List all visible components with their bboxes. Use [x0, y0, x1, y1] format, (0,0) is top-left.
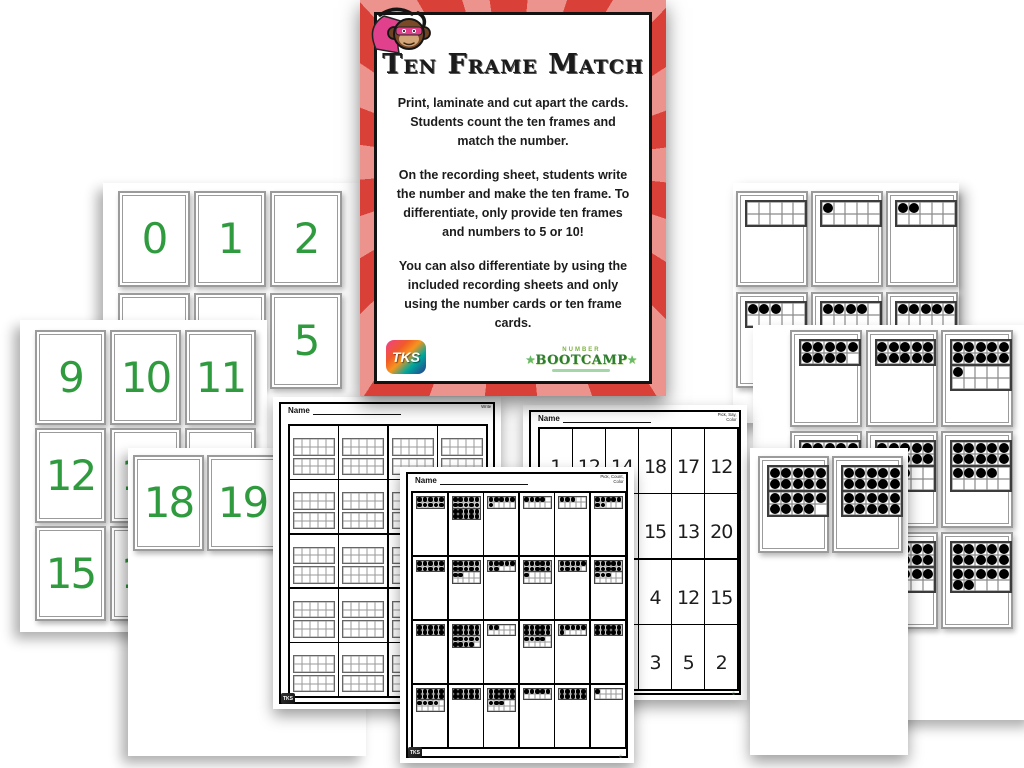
ten-frame-cell — [900, 341, 912, 353]
number-card-value: 10 — [121, 357, 170, 399]
dot — [825, 353, 835, 363]
ten-frame-cell — [326, 629, 334, 637]
mini-ten-frame-group — [487, 624, 516, 637]
ten-frames-grid — [411, 491, 627, 749]
ten-frame — [293, 492, 335, 510]
ten-frame-cell — [302, 439, 310, 447]
ten-frame-cell — [294, 575, 302, 583]
ten-frame-cell — [888, 353, 900, 365]
ten-frame-cell-box — [591, 685, 625, 747]
number-card-inner: 5 — [274, 297, 338, 385]
ten-frame-cell — [318, 684, 326, 692]
dot — [999, 569, 1009, 579]
dot — [987, 544, 997, 554]
dot — [417, 503, 422, 508]
ten-frame-cell — [310, 684, 318, 692]
blank-frame-cell — [339, 589, 387, 642]
ten-frame-group — [745, 200, 807, 227]
ten-frame-cell — [909, 303, 921, 315]
dot — [423, 561, 428, 566]
ten-frame-cell — [964, 442, 976, 454]
dot — [964, 544, 974, 554]
ten-frame-cell — [326, 447, 334, 455]
ten-frame-cell — [824, 353, 836, 365]
ten-frame — [523, 635, 552, 648]
ten-frame — [950, 541, 1012, 568]
dot — [912, 443, 922, 453]
dot — [453, 514, 458, 519]
dot — [417, 701, 422, 706]
dot — [987, 353, 997, 363]
dot — [576, 625, 581, 630]
instruction-paragraph: Print, laminate and cut apart the cards.… — [392, 94, 634, 150]
dot — [759, 304, 769, 314]
ten-frame-cell — [367, 439, 375, 447]
ten-frame-cell — [770, 214, 782, 226]
ten-frame — [523, 624, 552, 637]
ten-frame — [950, 566, 1012, 593]
ten-frame-card — [941, 532, 1013, 629]
ten-frame-cell — [310, 548, 318, 556]
ten-frame-cell — [822, 202, 834, 214]
ten-frame-cell — [318, 548, 326, 556]
dot — [458, 625, 463, 630]
ten-frame-cell — [998, 341, 1010, 353]
ten-frame-cell — [326, 493, 334, 501]
ten-frame-cell — [975, 366, 987, 378]
dot — [565, 497, 570, 502]
ten-frame-cell — [987, 366, 999, 378]
ten-frame-cell — [294, 664, 302, 672]
blank-double-ten-frame — [293, 438, 335, 477]
mini-ten-frame-group — [487, 688, 516, 712]
ten-frame-group — [799, 339, 861, 366]
ten-frame — [452, 496, 481, 509]
dot — [469, 642, 474, 647]
dot — [439, 567, 444, 572]
ten-frame-cell — [920, 214, 932, 226]
ten-frame-cell — [781, 479, 793, 491]
tks-logo: TKS — [408, 747, 422, 758]
ten-frame-cell — [359, 656, 367, 664]
dot — [499, 689, 504, 694]
mini-ten-frame-group — [452, 624, 481, 648]
ten-frame-cell — [847, 341, 859, 353]
ten-frame-cell — [351, 567, 359, 575]
dot — [469, 630, 474, 635]
ten-frame-card — [811, 191, 883, 287]
ten-frame-cell — [302, 684, 310, 692]
ten-frame-cell — [442, 459, 450, 467]
instruction-paragraph: On the recording sheet, students write t… — [392, 166, 634, 241]
dot — [494, 689, 499, 694]
ten-frame-cell — [343, 676, 351, 684]
ten-frame-cell — [769, 479, 781, 491]
dot — [546, 561, 551, 566]
ten-frame-cell — [294, 439, 302, 447]
ten-frame — [293, 655, 335, 673]
ten-frame-cell — [343, 602, 351, 610]
ten-frame-cell — [343, 610, 351, 618]
dot — [606, 567, 611, 572]
ten-frame-cell — [326, 610, 334, 618]
number-card-inner: 1 — [198, 195, 262, 283]
ten-frame-cell — [367, 567, 375, 575]
ten-frame-cell — [343, 664, 351, 672]
ten-frame-group — [841, 465, 903, 517]
dot — [898, 203, 908, 213]
dot — [923, 443, 933, 453]
ten-frame — [594, 624, 623, 637]
ten-frame-cell — [474, 502, 479, 507]
dot — [999, 353, 1009, 363]
dot — [595, 573, 600, 578]
dot — [804, 479, 814, 489]
dot — [428, 689, 433, 694]
dot — [770, 479, 780, 489]
ten-frame-cell — [911, 568, 923, 580]
ten-frame-cell — [294, 493, 302, 501]
mini-ten-frame-group — [416, 496, 445, 509]
ten-frame-group — [767, 465, 829, 517]
dot — [889, 342, 899, 352]
dot — [964, 555, 974, 565]
instruction-paragraph: You can also differentiate by using the … — [392, 257, 634, 332]
ten-frame — [594, 560, 623, 573]
ten-frame-cell — [987, 543, 999, 555]
ten-frame-cell — [897, 303, 909, 315]
ten-frame-cell — [326, 656, 334, 664]
ten-frame-cell-box — [449, 557, 483, 619]
ten-frame-cell — [294, 656, 302, 664]
ten-frame-cell — [367, 656, 375, 664]
name-line — [313, 406, 401, 415]
ten-frame-cell — [987, 568, 999, 580]
dot — [606, 573, 611, 578]
dot — [546, 567, 551, 572]
dot — [964, 569, 974, 579]
number-cell-value: 18 — [644, 456, 666, 478]
ten-frame-cell — [351, 555, 359, 563]
ten-frame-cell — [375, 459, 383, 467]
number-cell-value: 12 — [677, 587, 699, 609]
ten-frame-cell — [367, 513, 375, 521]
dot — [617, 625, 622, 630]
ten-frame — [487, 560, 516, 573]
ten-frame-cell — [302, 610, 310, 618]
dot — [469, 625, 474, 630]
ten-frame-cell — [375, 555, 383, 563]
dot — [987, 342, 997, 352]
dot — [999, 342, 1009, 352]
corner-label: Write — [481, 405, 491, 410]
ten-frame — [342, 601, 384, 619]
dot — [453, 637, 458, 642]
blank-frame-cell — [339, 643, 387, 696]
dot — [453, 497, 458, 502]
ten-frame-cell — [294, 555, 302, 563]
ten-frame-cell — [367, 493, 375, 501]
ten-frame-cell — [318, 575, 326, 583]
dot — [565, 625, 570, 630]
ten-frame-cell — [367, 621, 375, 629]
ten-frame-cell — [439, 502, 444, 507]
ten-frame-cell — [923, 467, 935, 479]
dot — [571, 561, 576, 566]
ten-frame-cell — [326, 555, 334, 563]
ten-frame — [841, 465, 903, 492]
dot — [987, 555, 997, 565]
ten-frame-cell — [975, 467, 987, 479]
ten-frame-cell — [294, 447, 302, 455]
ten-frame-cell — [836, 353, 848, 365]
dot — [469, 497, 474, 502]
dot — [987, 468, 997, 478]
ten-frame-cell — [294, 501, 302, 509]
dot — [524, 625, 529, 630]
ten-frame-cell — [401, 439, 409, 447]
ten-frame-cell — [952, 555, 964, 567]
ten-frame — [950, 364, 1012, 391]
ten-frame-cell — [417, 439, 425, 447]
ten-frame-cell — [318, 459, 326, 467]
ten-frame-cell — [769, 467, 781, 479]
ten-frame — [342, 547, 384, 565]
ten-frame — [416, 624, 445, 637]
dot — [912, 544, 922, 554]
ten-frame-cell-box — [484, 685, 518, 747]
blank-double-ten-frame — [293, 547, 335, 586]
ten-frame-cell — [343, 621, 351, 629]
ten-frame-cell — [474, 514, 479, 519]
number-card-inner: 10 — [114, 334, 177, 421]
dot — [878, 468, 888, 478]
dot — [458, 630, 463, 635]
copyright-fineprint: © — [619, 755, 622, 759]
dot — [606, 630, 611, 635]
ten-frame-group — [895, 301, 957, 328]
ten-frame — [799, 339, 861, 366]
dot — [793, 468, 803, 478]
ten-frame-cell — [866, 492, 878, 504]
dot — [453, 625, 458, 630]
dot — [499, 701, 504, 706]
dot — [611, 567, 616, 572]
ten-frame-cell — [952, 568, 964, 580]
ten-frame-cell — [351, 521, 359, 529]
ten-frame-cell — [822, 303, 834, 315]
mini-ten-frame-group — [594, 560, 623, 584]
dot — [601, 561, 606, 566]
dot — [535, 637, 540, 642]
ten-frame-cell — [367, 664, 375, 672]
ten-frame-cell — [888, 341, 900, 353]
dot — [909, 304, 919, 314]
dot — [825, 342, 835, 352]
number-card: 19 — [207, 455, 278, 551]
ten-frame-card-inner — [945, 536, 1009, 625]
number-card: 12 — [35, 428, 106, 523]
ten-frame-cell — [923, 543, 935, 555]
dot — [565, 694, 570, 699]
ten-frame-cell — [474, 578, 479, 583]
ten-frame-cell — [375, 447, 383, 455]
ten-frame-cell — [302, 447, 310, 455]
dot — [771, 304, 781, 314]
ten-frame-cell — [923, 341, 935, 353]
dot — [601, 503, 606, 508]
dot — [489, 561, 494, 566]
number-cell: 18 — [639, 429, 671, 493]
ten-frame-cell — [302, 521, 310, 529]
ten-frame-cell — [458, 447, 466, 455]
ten-frame-cell — [310, 447, 318, 455]
mini-ten-frame-group — [452, 560, 481, 584]
dot — [453, 509, 458, 514]
dot — [595, 503, 600, 508]
ten-frame-cell — [782, 202, 794, 214]
dot — [434, 567, 439, 572]
dot — [867, 493, 877, 503]
dot — [987, 443, 997, 453]
ten-frame-cell — [294, 459, 302, 467]
name-label: Name — [415, 476, 437, 485]
ten-frame-cell — [375, 664, 383, 672]
dot — [475, 497, 480, 502]
ten-frame — [452, 688, 481, 701]
dot — [458, 642, 463, 647]
ten-frame — [416, 496, 445, 509]
ten-frame-cell — [952, 378, 964, 390]
ten-frame-cell — [343, 548, 351, 556]
ten-frame-cell — [943, 303, 955, 315]
dot — [530, 689, 535, 694]
ten-frame-cell — [343, 555, 351, 563]
ten-frame-cell — [545, 566, 550, 571]
dot — [867, 504, 877, 514]
ten-frame-cell — [359, 501, 367, 509]
ten-frame-cell — [318, 629, 326, 637]
ten-frame-cell — [351, 493, 359, 501]
ten-frame-cell — [964, 467, 976, 479]
dot — [524, 637, 529, 642]
dot — [434, 694, 439, 699]
ten-frame — [820, 301, 882, 328]
dot — [464, 497, 469, 502]
number-cell-value: 15 — [710, 587, 732, 609]
ten-frame-cell — [343, 501, 351, 509]
dot — [770, 468, 780, 478]
ten-frame-cell — [923, 454, 935, 466]
dot — [475, 637, 480, 642]
dot — [423, 689, 428, 694]
dot — [540, 689, 545, 694]
ten-frame-cell — [987, 378, 999, 390]
ten-frame-group — [875, 339, 937, 366]
dot — [877, 342, 887, 352]
dot — [999, 454, 1009, 464]
ten-frame-cell — [923, 479, 935, 491]
dot — [844, 479, 854, 489]
ten-frame-cell — [987, 442, 999, 454]
ten-frame-cell — [474, 694, 479, 699]
ten-frame-cell — [343, 521, 351, 529]
number-bootcamp-logo: NUMBER ★BOOTCAMP★ — [526, 347, 637, 372]
ten-frame-card — [790, 330, 862, 427]
ten-frame-card-inner — [762, 460, 825, 549]
ten-frame — [875, 339, 937, 366]
ten-frame-card — [832, 456, 903, 553]
ten-frame-cell — [294, 548, 302, 556]
ten-frame-group — [820, 301, 882, 328]
dot — [540, 561, 545, 566]
dot — [540, 567, 545, 572]
ten-frame-cell — [359, 602, 367, 610]
ten-frame-cell — [545, 502, 550, 507]
dot — [921, 304, 931, 314]
number-cell: 12 — [672, 560, 704, 624]
number-card-value: 12 — [46, 455, 95, 497]
dot — [953, 367, 963, 377]
dot — [804, 493, 814, 503]
ten-frame-cell — [375, 466, 383, 474]
ten-frame — [293, 458, 335, 476]
ten-frame-cell — [294, 567, 302, 575]
ten-frame — [293, 566, 335, 584]
dot — [530, 625, 535, 630]
dot — [489, 503, 494, 508]
ten-frame-cell — [343, 459, 351, 467]
ten-frame-cell — [375, 610, 383, 618]
dot — [909, 203, 919, 213]
name-line — [440, 476, 528, 485]
ten-frame-cell — [326, 621, 334, 629]
number-cell: 12 — [705, 429, 737, 493]
ten-frame — [293, 675, 335, 693]
dot — [434, 503, 439, 508]
dot — [601, 573, 606, 578]
dot — [489, 497, 494, 502]
number-cell: 2 — [705, 625, 737, 689]
blank-frame-cell — [290, 426, 338, 479]
ten-frame-cell — [302, 656, 310, 664]
ten-frame-cell — [294, 621, 302, 629]
number-cell-value: 12 — [710, 456, 732, 478]
dot — [595, 625, 600, 630]
dot — [964, 580, 974, 590]
ten-frame-cell — [581, 630, 586, 635]
ten-frame-cell — [911, 442, 923, 454]
dot — [423, 625, 428, 630]
ten-frame-cell — [964, 378, 976, 390]
ten-frame-cell — [868, 214, 880, 226]
ten-frame-cell — [792, 467, 804, 479]
dot — [494, 701, 499, 706]
ten-frame-cell — [545, 630, 550, 635]
ten-frame-cell — [310, 602, 318, 610]
ten-frame-cell — [359, 555, 367, 563]
dot — [510, 694, 515, 699]
ten-frame-cell — [781, 504, 793, 516]
dot — [464, 625, 469, 630]
dot — [857, 304, 867, 314]
ten-frame-cell — [815, 479, 827, 491]
number-card-inner: 12 — [39, 432, 102, 519]
mini-ten-frame-group — [523, 624, 552, 648]
dot — [458, 497, 463, 502]
instruction-panel: Ten Frame Match Print, laminate and cut … — [374, 12, 652, 384]
number-card-value: 0 — [142, 218, 167, 260]
